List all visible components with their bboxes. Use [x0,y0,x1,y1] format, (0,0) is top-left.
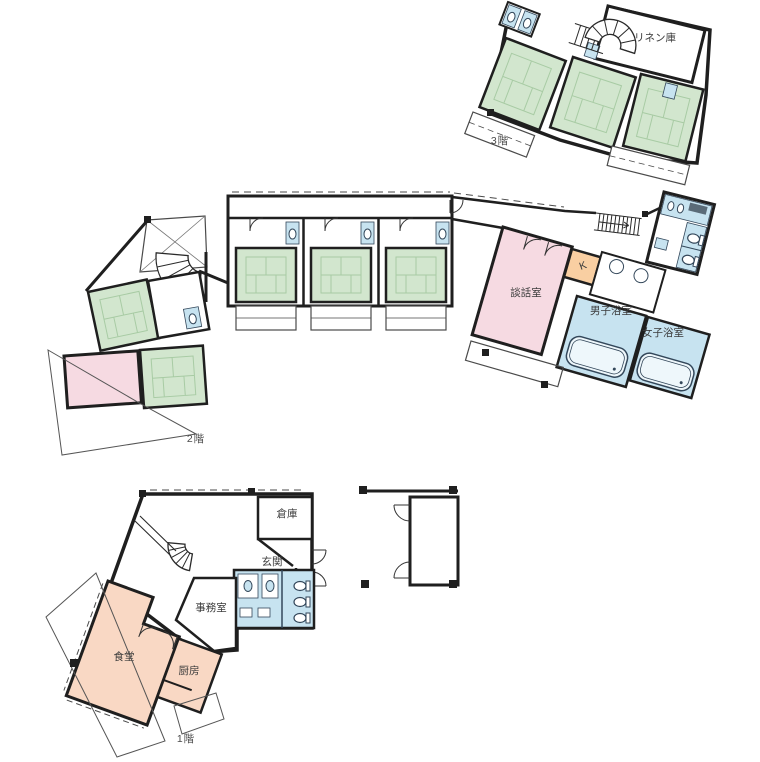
floor3-tatami-room-3 [623,74,703,161]
floor2-center-block [228,192,452,330]
floor1-post-2 [248,488,255,495]
floor2-mens-bath-label: 男子浴室 [590,304,632,317]
floor2-label: 2階 [187,433,205,445]
floor2-balcony-post-1 [482,349,489,356]
floor2-plan: 談話室 K 男子浴室 女子浴室 2階 [48,192,714,455]
floor-plan-page: リネン庫 3階 [0,0,760,762]
floor1-post-3 [70,659,78,667]
floor2-tatami-room-2 [311,248,371,302]
floor2-womens-bath-label: 女子浴室 [642,326,684,339]
floor1-office-label: 事務室 [195,601,227,614]
floor1-wc-cluster [234,570,314,628]
floor1-dining-label: 食堂 [114,650,135,663]
floor2-wc-cluster [647,192,715,274]
floor3-label: 3階 [491,135,509,147]
floor2-tatami-room-1 [236,248,296,302]
floor2-corridor-walls [452,197,664,228]
floor2-lounge-label: 談話室 [510,286,542,299]
floor2-tatami-room-3 [386,248,446,302]
floor1-label: 1階 [177,733,195,745]
floor2-right-wing [465,192,714,398]
floor1-plan: 食堂 厨房 事務室 玄関 倉庫 1階 [46,486,458,757]
floor-plan-drawing: リネン庫 3階 [0,0,760,762]
floor2-wing-hall [148,272,209,338]
floor3-corner-post [487,109,494,116]
floor1-outbuilding-doors [394,505,410,578]
floor2-balconies [236,306,446,330]
floor3-linen-label: リネン庫 [634,31,676,44]
floor2-straight-stairs [594,213,642,235]
floor2-balcony-post-2 [541,381,548,388]
floor2-stair-post [642,211,648,217]
floor1-outbuilding [359,486,458,588]
floor3-plan: リネン庫 3階 [465,2,710,185]
floor2-wing-pink-room [64,351,141,408]
floor1-entrance-label: 玄関 [262,555,283,568]
floor1-kitchen-label: 厨房 [179,664,200,677]
floor2-wing-tatami-2 [140,346,207,408]
floor1-post-1 [139,490,146,497]
floor1-storage-label: 倉庫 [277,507,298,520]
